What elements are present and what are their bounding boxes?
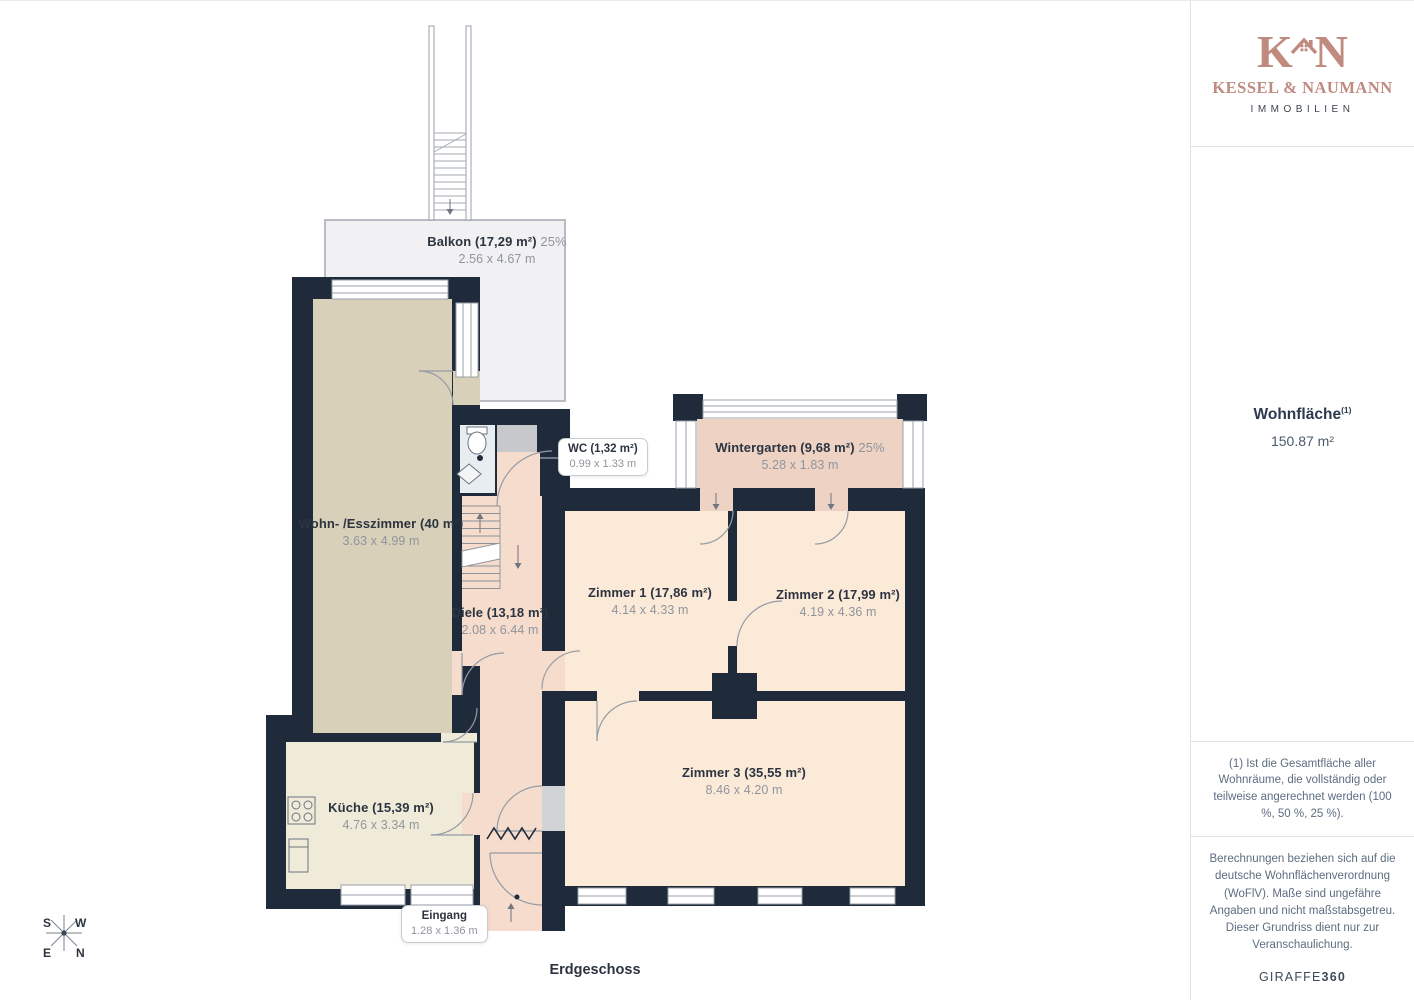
room-dims: 0.99 x 1.33 m — [568, 457, 638, 471]
toilet-icon — [467, 427, 487, 454]
entrance-dot — [515, 895, 520, 900]
room-label-eingang: Eingang 1.28 x 1.36 m — [401, 905, 488, 943]
compass-e: E — [43, 946, 51, 960]
giraffe360-logo: GIRAFFE360 — [1206, 970, 1399, 984]
room-dims: 2.56 x 4.67 m — [357, 251, 637, 267]
room-dims: 5.28 x 1.83 m — [680, 457, 920, 473]
compass-s: S — [43, 916, 51, 930]
room-dims: 2.08 x 6.44 m — [385, 622, 615, 638]
company-tagline: IMMOBILIEN — [1251, 104, 1355, 115]
room-name: Küche (15,39 m²) — [266, 800, 496, 817]
disclaimer-text: Berechnungen beziehen sich auf die deuts… — [1206, 851, 1399, 955]
room-name: Balkon (17,29 m²) — [427, 234, 536, 249]
wardrobe-block — [497, 425, 537, 452]
room-name: Diele (13,18 m²) — [385, 605, 615, 622]
exterior-staircase-icon — [429, 26, 471, 220]
floor-title: Erdgeschoss — [0, 962, 1190, 978]
room-name: Zimmer 3 (35,55 m²) — [629, 765, 859, 782]
sidebar: K N KESSEL & NAUMANN IMMOBILIEN Wohnfläc… — [1190, 1, 1414, 1000]
room-label-wohn-esszimmer: Wohn- /Esszimmer (40 m²) 3.63 x 4.99 m — [266, 516, 496, 549]
room-share: 25% — [540, 234, 566, 249]
brand-monogram: K N — [1257, 32, 1348, 71]
room-dims: 8.46 x 4.20 m — [629, 782, 859, 798]
compass-w: W — [75, 916, 87, 930]
room-dims: 4.76 x 3.34 m — [266, 817, 496, 833]
room-label-kueche: Küche (15,39 m²) 4.76 x 3.34 m — [266, 800, 496, 833]
footnote-panel: (1) Ist die Gesamtfläche aller Wohnräume… — [1191, 741, 1414, 837]
room-label-wintergarten: Wintergarten (9,68 m²) 25% 5.28 x 1.83 m — [680, 440, 920, 473]
room-name: WC (1,32 m²) — [568, 442, 638, 457]
compass-icon: S W E N — [43, 915, 87, 960]
monogram-letter-k: K — [1257, 32, 1293, 71]
room-name: Wohn- /Esszimmer (40 m²) — [266, 516, 496, 533]
room-label-zimmer3: Zimmer 3 (35,55 m²) 8.46 x 4.20 m — [629, 765, 859, 798]
compass-n: N — [76, 946, 85, 960]
room-label-balkon: Balkon (17,29 m²) 25% 2.56 x 4.67 m — [357, 234, 637, 267]
room-label-wc: WC (1,32 m²) 0.99 x 1.33 m — [558, 438, 648, 476]
room-dims: 3.63 x 4.99 m — [266, 533, 496, 549]
wc-dot — [477, 455, 483, 461]
room-label-diele: Diele (13,18 m²) 2.08 x 6.44 m — [385, 605, 615, 638]
footnote-marker: (1) — [1341, 405, 1351, 415]
floorplan-page: S W E N Balkon (17,29 m²) 25% 2.56 x 4.6… — [0, 0, 1414, 1000]
room-dims: 1.28 x 1.36 m — [411, 924, 478, 938]
floorplan-drawing: S W E N — [0, 1, 1190, 1000]
company-name: KESSEL & NAUMANN — [1212, 78, 1392, 98]
monogram-letter-n: N — [1315, 32, 1348, 71]
disclaimer-block: Berechnungen beziehen sich auf die deuts… — [1191, 851, 1414, 984]
footnote-text: (1) Ist die Gesamtfläche aller Wohnräume… — [1208, 756, 1397, 823]
room-share: 25% — [858, 440, 884, 455]
living-area-summary: Wohnfläche(1) 150.87 m² — [1191, 405, 1414, 449]
room-dims: 4.19 x 4.36 m — [723, 604, 953, 620]
counter-icon — [289, 839, 308, 872]
room-label-zimmer2: Zimmer 2 (17,99 m²) 4.19 x 4.36 m — [723, 587, 953, 620]
room-name: Zimmer 2 (17,99 m²) — [723, 587, 953, 604]
living-area-value: 150.87 m² — [1191, 433, 1414, 449]
room-name: Wintergarten (9,68 m²) — [715, 440, 854, 455]
brand-logo: K N KESSEL & NAUMANN IMMOBILIEN — [1191, 1, 1414, 147]
living-area-title: Wohnfläche(1) — [1191, 405, 1414, 424]
room-name: Eingang — [411, 909, 478, 924]
